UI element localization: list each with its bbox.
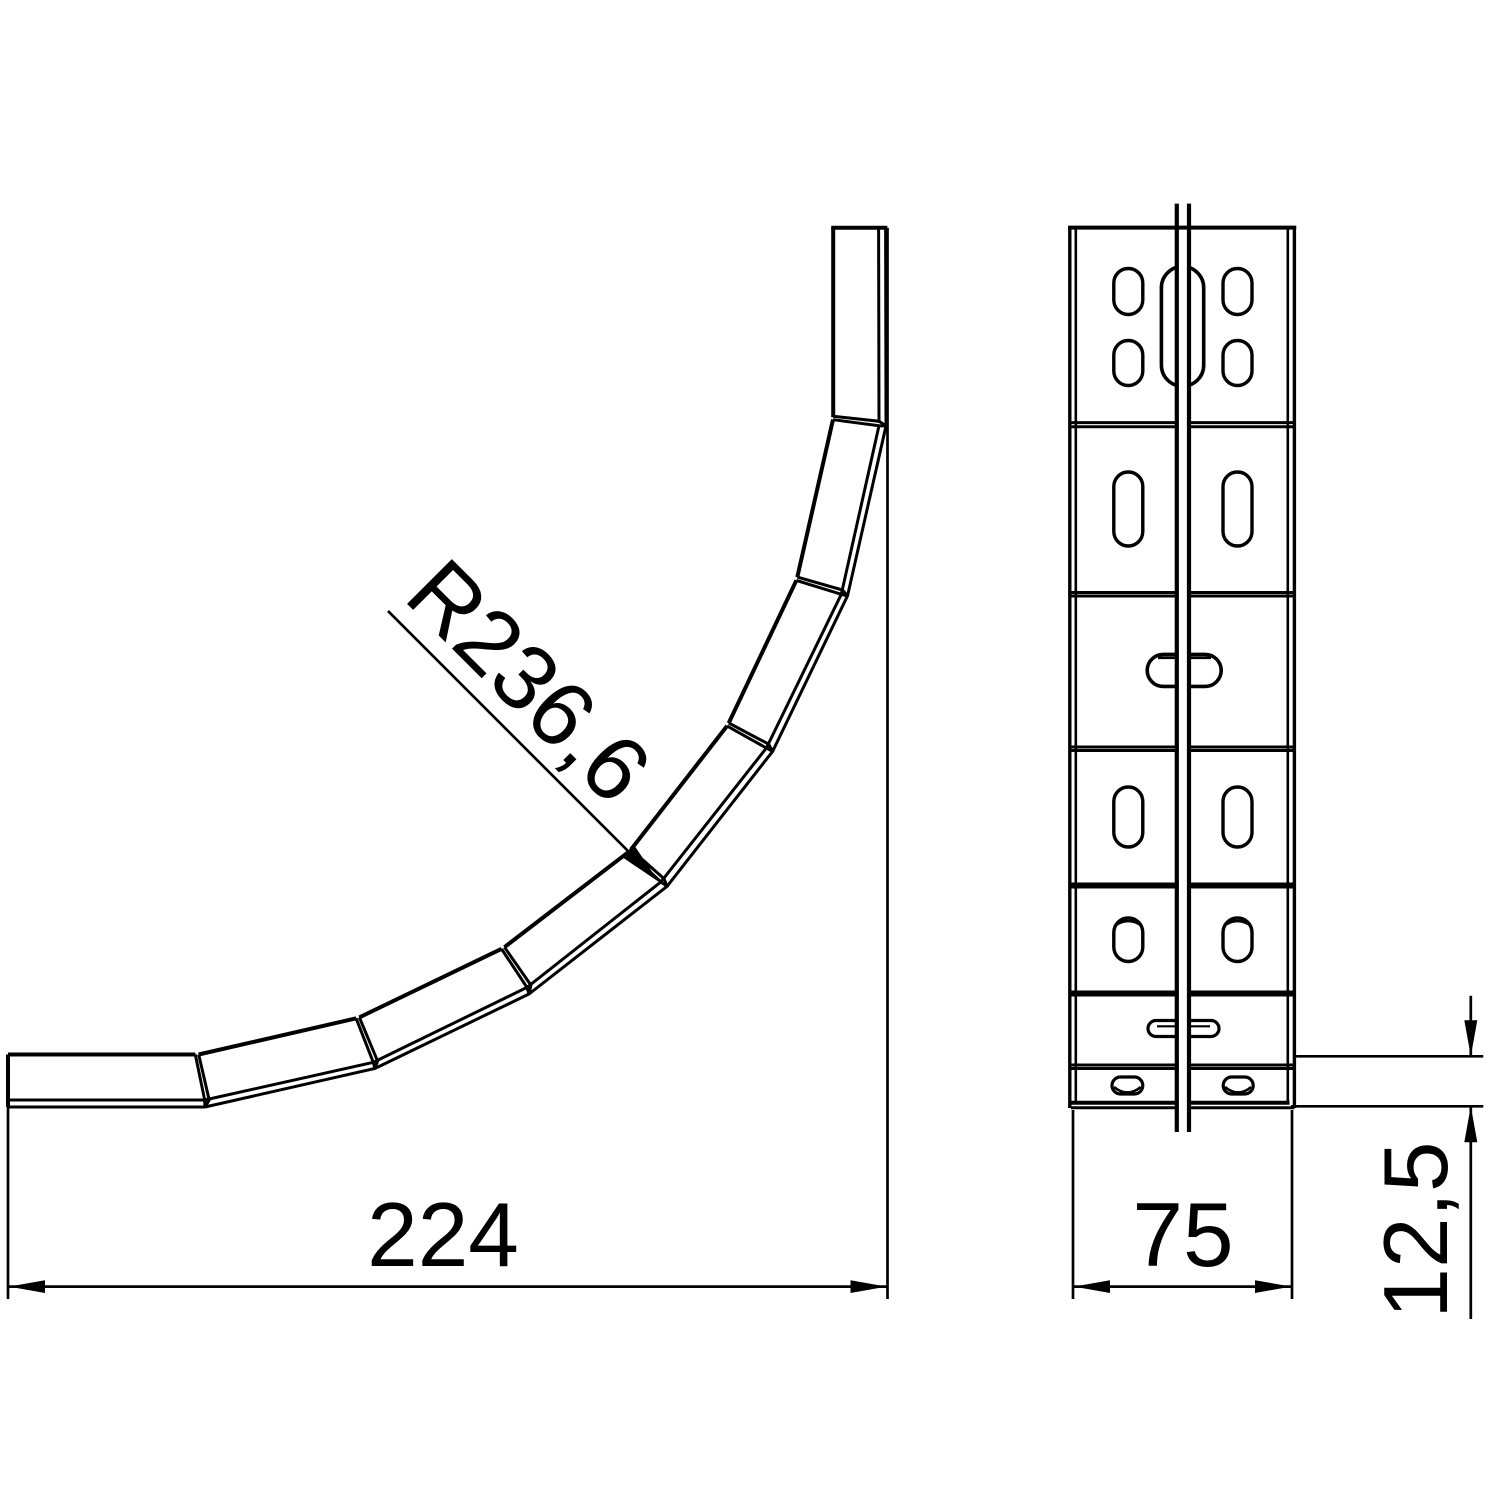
- svg-text:224: 224: [367, 1185, 519, 1286]
- svg-text:75: 75: [1132, 1185, 1233, 1286]
- svg-text:12,5: 12,5: [1366, 1141, 1467, 1318]
